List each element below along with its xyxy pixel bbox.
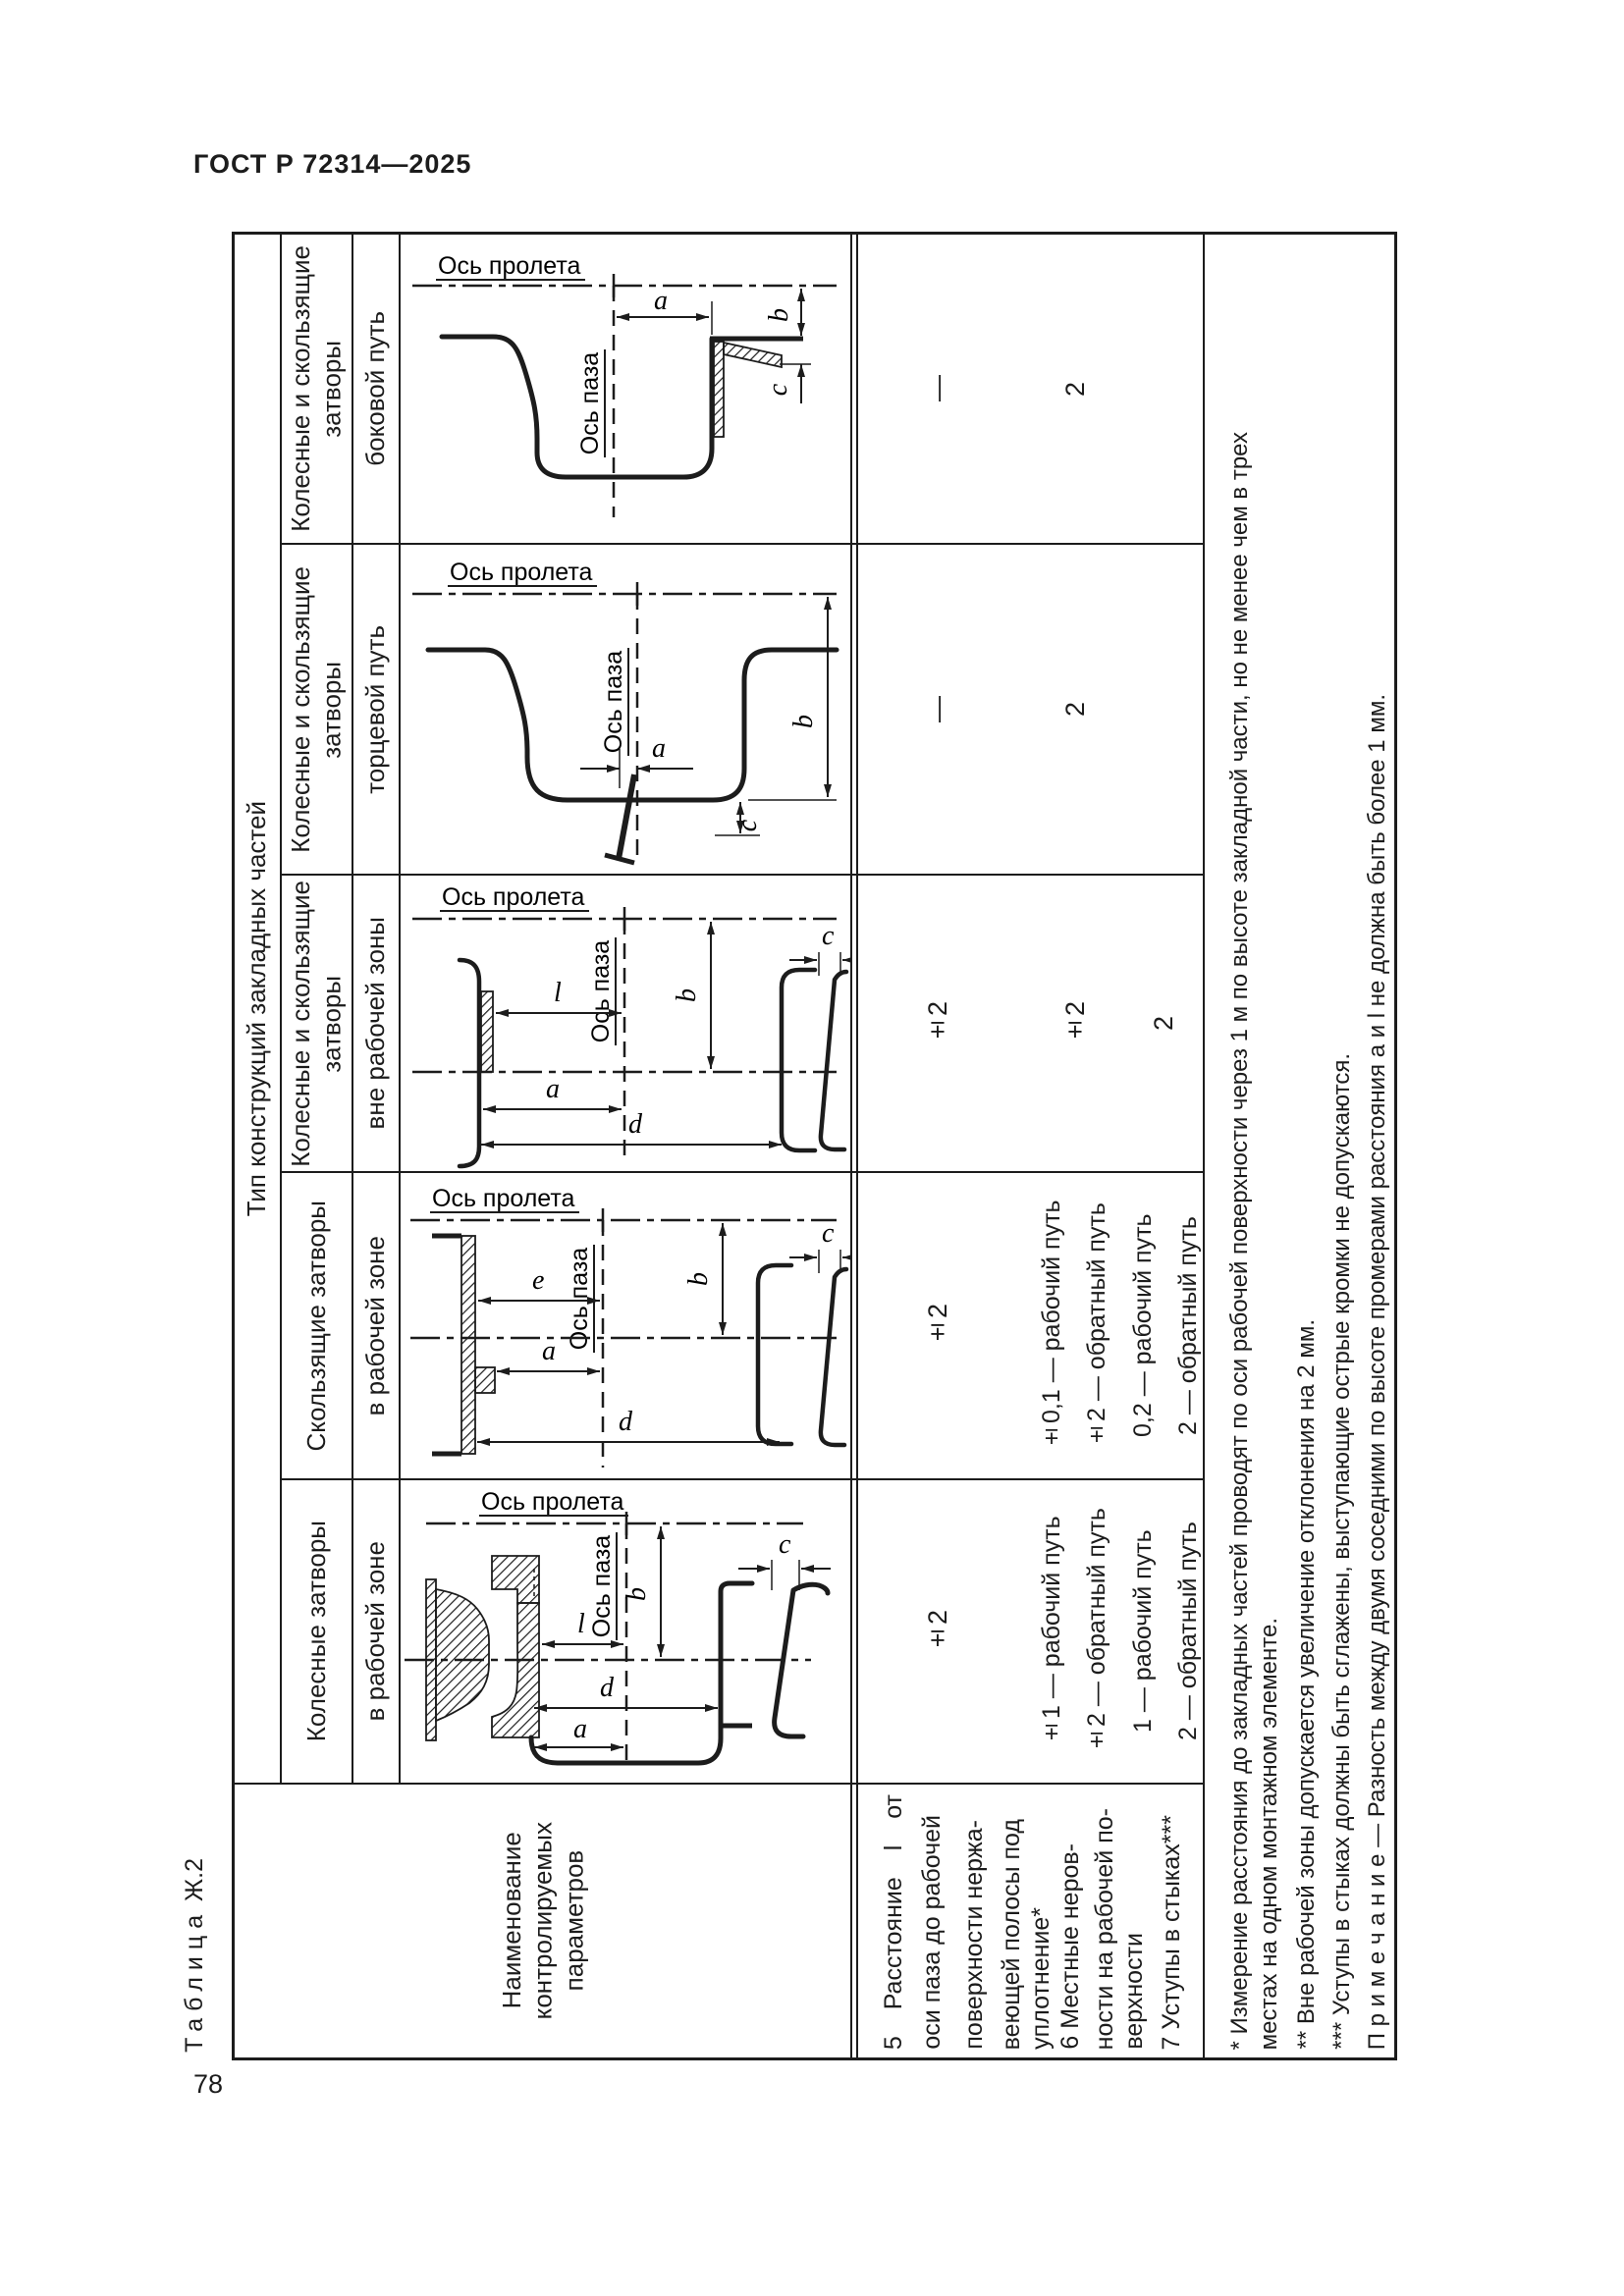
type-label: Скользящие затворы	[301, 1201, 333, 1452]
zone-label: торцевой путь	[360, 625, 392, 794]
document-page: ГОСТ Р 72314—2025 Таблица Ж.2 78 Тип кон…	[0, 0, 1624, 2296]
svg-text:Ось паза: Ось паза	[587, 940, 615, 1043]
groove-profile	[531, 1583, 752, 1763]
axis-groove-label: Ось паза	[566, 1245, 594, 1353]
type-label: Колесные затворы	[301, 1521, 333, 1741]
dim-a-label: a	[573, 1714, 587, 1744]
zone-label: боковой путь	[360, 311, 392, 466]
note-primechanie: П р и м е ч а н и е — Разность между дву…	[1364, 694, 1391, 2050]
diagram-side-track: Ось пролета Ось паза a b	[399, 235, 852, 543]
zone-label: в рабочей зоне	[360, 1541, 392, 1721]
svg-text:Ось паза: Ось паза	[588, 1535, 616, 1638]
value-row7-line2: 2 — обратный путь	[1174, 1480, 1203, 1783]
param-line: верхности	[1120, 1933, 1149, 2050]
value-row5: ±2	[923, 1480, 953, 1783]
measuring-rod	[619, 774, 634, 859]
band-zone-wheeled: в рабочей зоне	[353, 1480, 399, 1783]
band-type-sliding: Скользящие затворы	[282, 1173, 352, 1478]
table-caption: Таблица Ж.2	[181, 1858, 209, 2053]
right-wall-profile	[758, 1265, 791, 1444]
value-row7-line1: 1 — рабочий путь	[1129, 1480, 1158, 1783]
band-type-end-track: Колесные и скользящие затворы	[282, 545, 352, 874]
band-type-wheeled: Колесные затворы	[282, 1480, 352, 1783]
param-line: 6 Местные неров-	[1056, 1843, 1085, 2050]
dim-b-label: b	[622, 1587, 652, 1601]
axis-groove-label: Ось паза	[588, 1532, 617, 1640]
values-sliding: ±2 ±0,1 — рабочий путь ±2 — обратный пут…	[858, 1173, 1203, 1478]
values-wheeled: ±2 ±1 — рабочий путь ±2 — обратный путь …	[858, 1480, 1203, 1783]
value-row6: 2	[1060, 235, 1091, 543]
rail-wedge-hatched	[724, 343, 782, 367]
left-wall-profile	[460, 960, 479, 1166]
values-side-track: — 2	[858, 235, 1203, 543]
opposite-wall-slanted	[821, 972, 846, 1149]
dim-d-label: d	[628, 1109, 643, 1140]
axis-groove-label: Ось паза	[600, 648, 628, 756]
dim-a-label: a	[654, 286, 668, 316]
value-row5: —	[923, 545, 953, 874]
type-label: Колесные и скользящие затворы	[286, 245, 348, 532]
type-label: Колесные и скользящие затворы	[286, 566, 348, 853]
diagram-cell-sliding: Ось пролета Ось паза e a d	[399, 1173, 852, 1478]
type-label: Колесные и скользящие затворы	[286, 881, 348, 1167]
dim-b-label: b	[672, 988, 702, 1002]
dim-d-label: d	[619, 1407, 633, 1437]
note-joints: *** Уступы в стыках должны быть сглажены…	[1328, 1053, 1356, 2050]
values-outside-zone: ±2 ±2 2	[858, 876, 1203, 1171]
band-zone-sliding: в рабочей зоне	[353, 1173, 399, 1478]
dim-b-label: b	[764, 308, 794, 322]
svg-text:Ось паза: Ось паза	[600, 651, 627, 754]
group-header-cell: Тип конструкций закладных частей	[235, 235, 280, 1783]
dim-e-label: e	[532, 1265, 544, 1296]
value-row6-line2: ±2 — обратный путь	[1083, 1173, 1111, 1478]
axis-span-label: Ось пролета	[438, 252, 581, 280]
note-measure: * Измерение расстояния до закладных част…	[1226, 432, 1254, 2050]
band-zone-outside-zone: вне рабочей зоны	[353, 876, 399, 1171]
diagram-outside-zone: Ось пролета Ось паза l b a d	[399, 876, 852, 1171]
dim-c-label: c	[822, 1218, 835, 1249]
table-caption-number: Ж.2	[181, 1858, 208, 1901]
diagram-end-track: Ось пролета Ось паза b a	[399, 545, 852, 874]
dim-a-label: a	[546, 1074, 560, 1104]
value-row7: 2	[1149, 876, 1179, 1171]
rail-plate-hatched	[461, 1236, 475, 1454]
dim-c-label: c	[732, 819, 763, 831]
band-zone-end-track: торцевой путь	[353, 545, 399, 874]
dim-l-label: l	[577, 1609, 585, 1639]
dim-a-label: a	[542, 1336, 556, 1366]
param-line: 5 Расстояние l от	[880, 1794, 908, 2050]
opposite-wall-slanted	[821, 1269, 846, 1445]
param-line: 7 Уступы в стыках***	[1158, 1815, 1186, 2050]
dim-b-label: b	[683, 1272, 714, 1286]
param-line: оси паза до рабочей	[918, 1815, 947, 2050]
svg-text:Ось паза: Ось паза	[576, 352, 604, 455]
band-type-outside-zone: Колесные и скользящие затворы	[282, 876, 352, 1171]
standard-code: ГОСТ Р 72314—2025	[193, 149, 471, 180]
notes-cell: * Измерение расстояния до закладных част…	[1203, 235, 1394, 2057]
group-header-label: Тип конструкций закладных частей	[242, 801, 273, 1216]
dim-c-label: c	[779, 1529, 791, 1560]
zone-label: вне рабочей зоны	[360, 917, 392, 1129]
opposite-wall-slanted	[775, 1584, 828, 1736]
dim-b-label: b	[788, 715, 819, 728]
dim-d-label: d	[600, 1673, 615, 1703]
value-row5: —	[923, 235, 953, 543]
zone-label: в рабочей зоне	[360, 1236, 392, 1415]
stainless-strip-hatched	[481, 991, 493, 1072]
parameter-names-cell: 5 Расстояние l от оси паза до рабочей по…	[858, 1783, 1203, 2057]
dim-l-label: l	[554, 978, 562, 1008]
value-row7-line2: 2 — обратный путь	[1174, 1173, 1203, 1478]
axis-groove-label: Ось паза	[576, 349, 605, 457]
rail-block-hatched	[475, 1367, 495, 1393]
note-measure-wrap: местах на одном монтажном элементе.	[1256, 1618, 1283, 2050]
note-outside-zone: ** Вне рабочей зоны допускается увеличен…	[1293, 1319, 1321, 2050]
diagram-wheeled-gate: Ось пролета Ось паза b	[399, 1480, 852, 1783]
rail-strip-hatched	[714, 342, 724, 437]
dim-c-label: c	[763, 383, 793, 396]
value-row5: ±2	[923, 876, 953, 1171]
value-row6: 2	[1060, 545, 1091, 874]
axis-span-label: Ось пролета	[450, 559, 593, 586]
diagram-sliding-gate: Ось пролета Ось паза e a d	[399, 1173, 852, 1478]
value-row6-line2: ±2 — обратный путь	[1083, 1480, 1111, 1783]
diagram-cell-outside-zone: Ось пролета Ось паза l b a d	[399, 876, 852, 1171]
axis-span-label: Ось пролета	[442, 883, 585, 911]
values-end-track: — 2	[858, 545, 1203, 874]
value-row7-line1: 0,2 — рабочий путь	[1129, 1173, 1158, 1478]
value-row6-line1: ±0,1 — рабочий путь	[1038, 1173, 1066, 1478]
value-row6: ±2	[1060, 876, 1091, 1171]
axis-span-label: Ось пролета	[432, 1185, 575, 1212]
axis-span-label: Ось пролета	[481, 1488, 624, 1516]
name-header-cell: Наименование контролируемых параметров	[235, 1785, 852, 2057]
table-caption-word: Таблица	[181, 1908, 208, 2053]
diagram-cell-wheeled: Ось пролета Ось паза b	[399, 1480, 852, 1783]
band-zone-side-track: боковой путь	[353, 235, 399, 543]
dim-c-label: c	[822, 921, 835, 951]
name-header-label: Наименование контролируемых параметров	[497, 1822, 590, 2019]
table-zh2: Тип конструкций закладных частей Колесны…	[232, 232, 1397, 2060]
rail-profile-hatched	[426, 1556, 539, 1740]
value-row6-line1: ±1 — рабочий путь	[1038, 1480, 1066, 1783]
axis-groove-label: Ось паза	[587, 937, 616, 1045]
band-type-side-track: Колесные и скользящие затворы	[282, 235, 352, 543]
param-line: ности на рабочей по-	[1091, 1808, 1119, 2050]
param-line: поверхности нержа-	[960, 1820, 989, 2050]
param-line: уплотнение*	[1027, 1907, 1056, 2050]
dim-a-label: a	[652, 733, 666, 764]
svg-text:Ось паза: Ось паза	[566, 1248, 593, 1351]
param-line: веющей полосы под	[998, 1819, 1026, 2050]
value-row5: ±2	[923, 1173, 953, 1478]
page-number: 78	[193, 2069, 223, 2100]
right-wall-profile	[782, 970, 815, 1150]
diagram-cell-end-track: Ось пролета Ось паза b a	[399, 545, 852, 874]
diagram-cell-side-track: Ось пролета Ось паза a b	[399, 235, 852, 543]
